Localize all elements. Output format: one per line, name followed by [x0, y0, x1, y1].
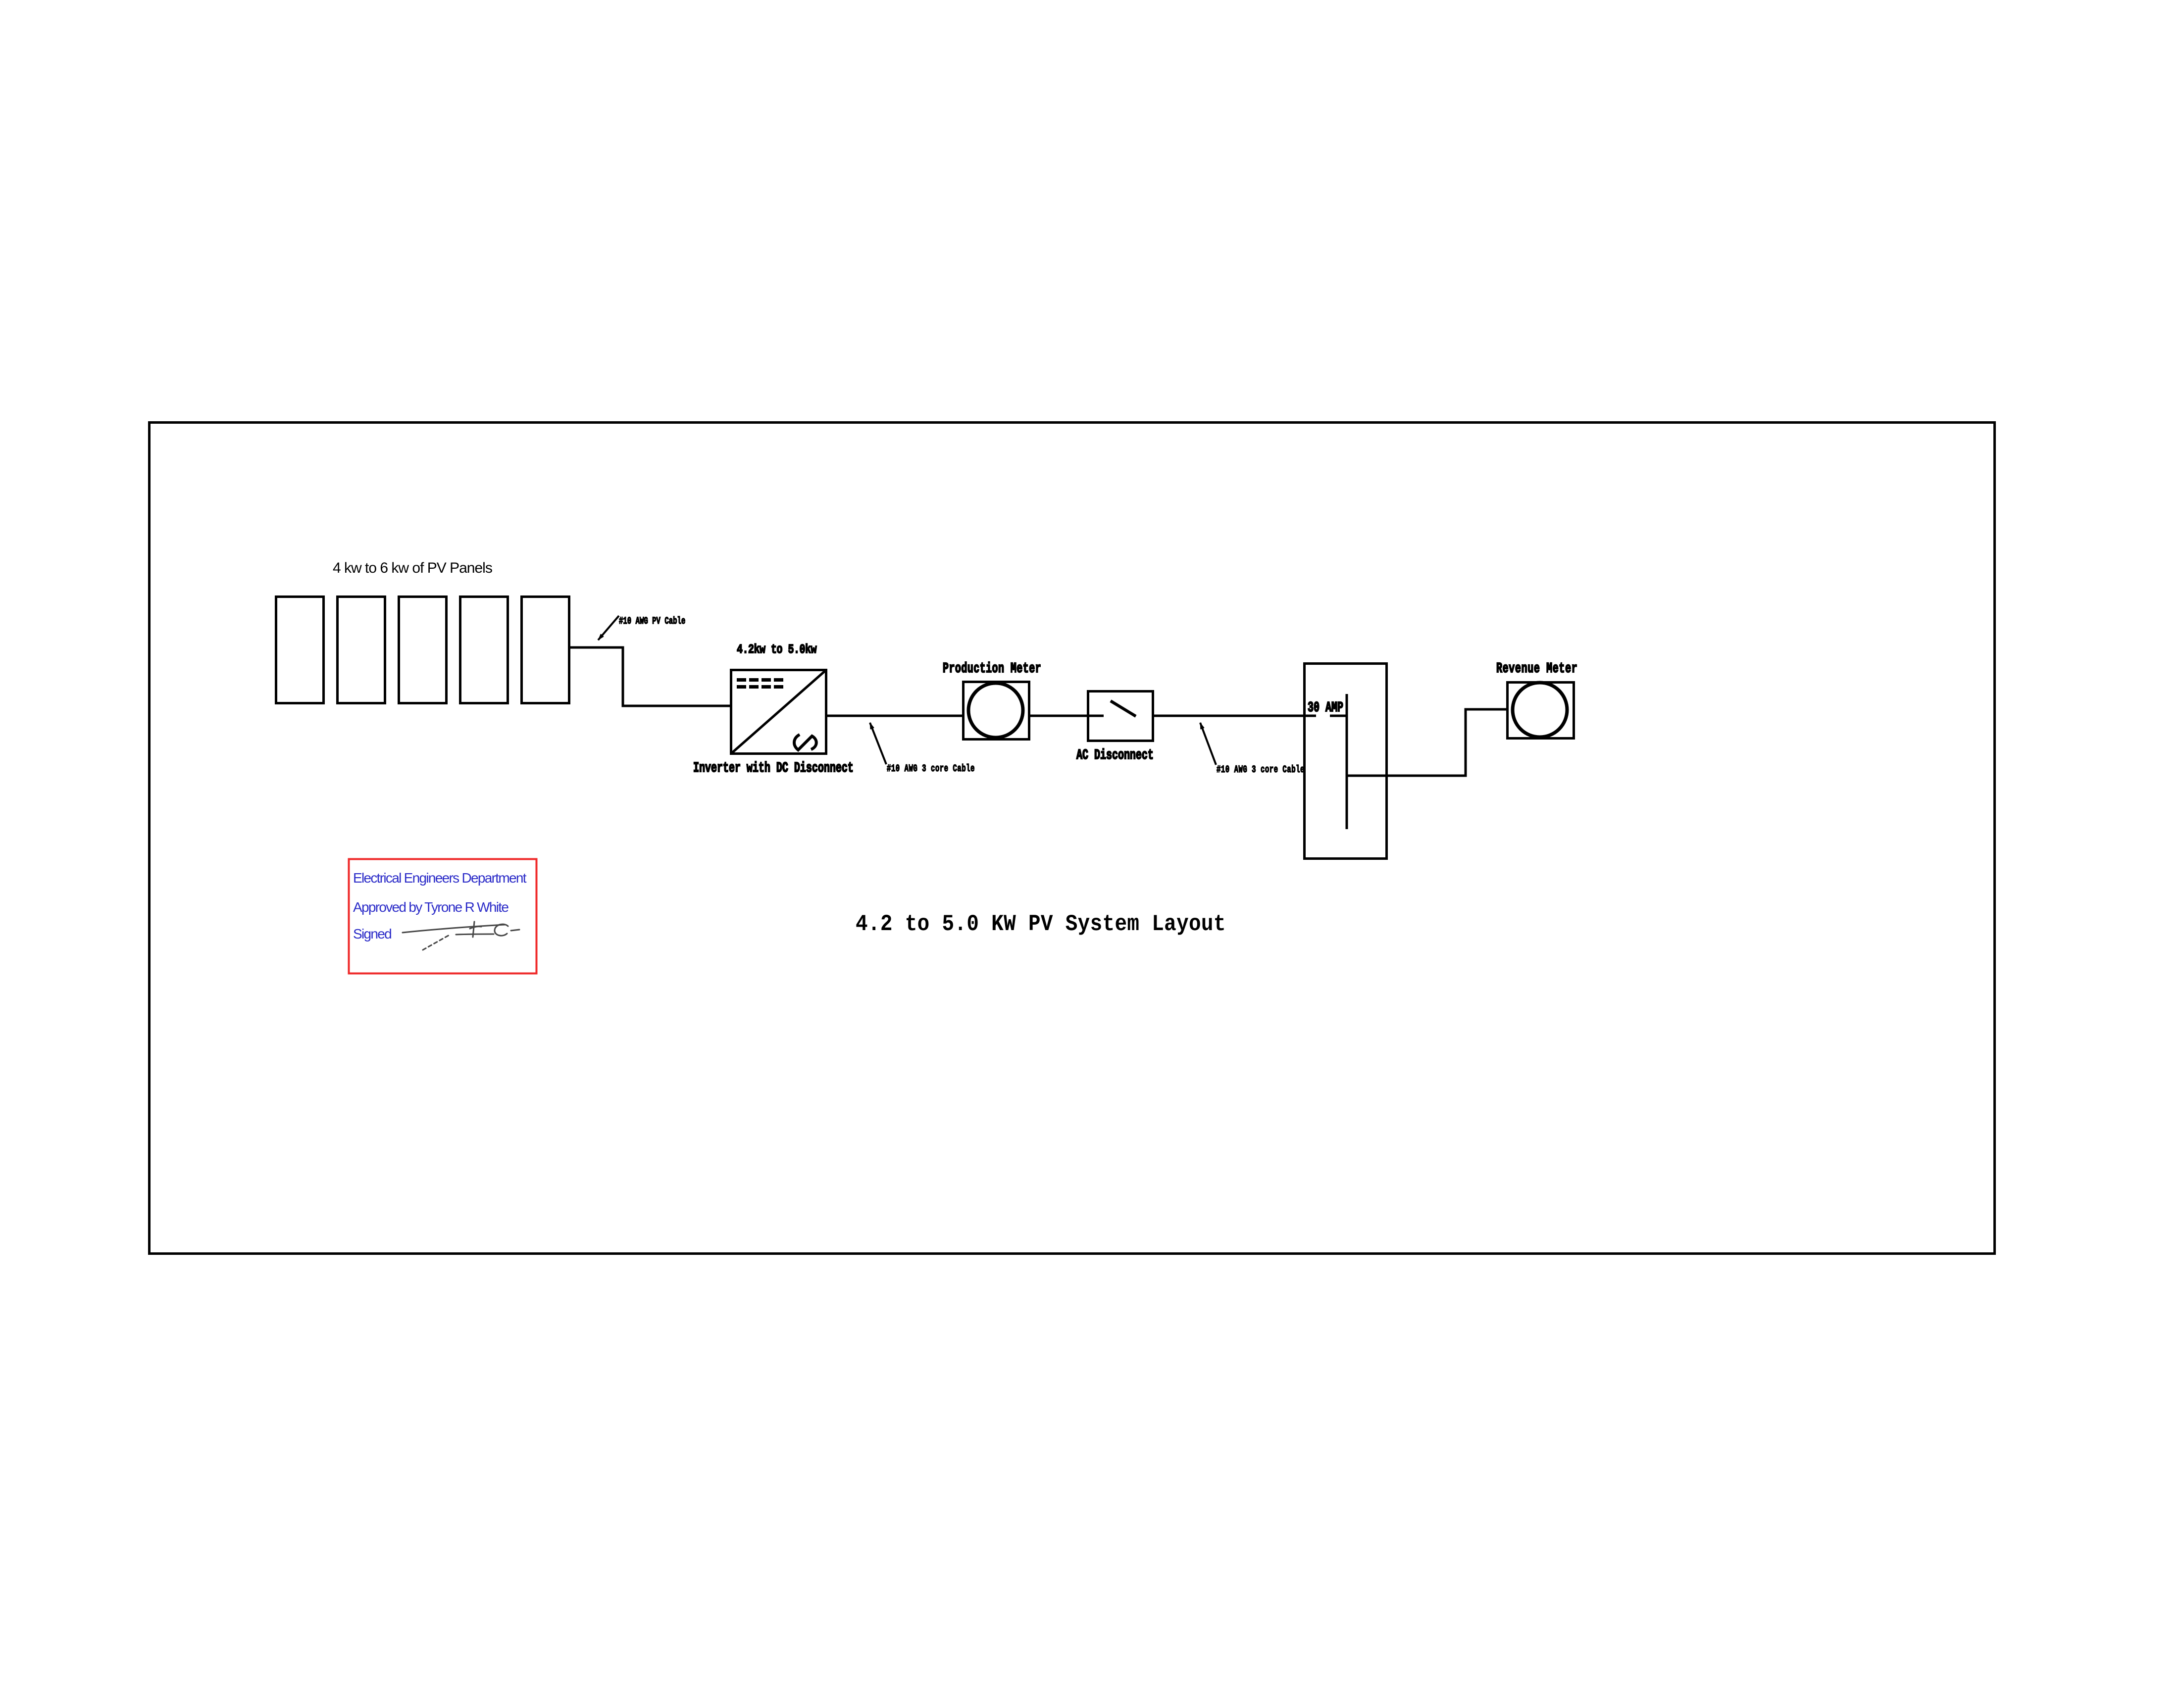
- svg-text:AC Disconnect: AC Disconnect: [1076, 747, 1154, 764]
- svg-text:Revenue Meter: Revenue Meter: [1496, 661, 1577, 677]
- svg-text:#10 AWG PV Cable: #10 AWG PV Cable: [619, 616, 685, 627]
- svg-text:#10 AWG 3 core Cable: #10 AWG 3 core Cable: [1217, 764, 1305, 776]
- svg-text:4.2kw to 5.0kw: 4.2kw to 5.0kw: [737, 643, 817, 657]
- svg-text:Approved by Tyrone R White: Approved by Tyrone R White: [353, 899, 508, 915]
- svg-text:Signed: Signed: [353, 926, 391, 941]
- svg-text:4 kw to 6 kw of PV Panels: 4 kw to 6 kw of PV Panels: [333, 560, 492, 576]
- svg-text:Inverter with DC Disconnect: Inverter with DC Disconnect: [693, 760, 854, 777]
- svg-text:4.2 to 5.0 KW PV System Layout: 4.2 to 5.0 KW PV System Layout: [856, 912, 1226, 938]
- svg-text:Electrical Engineers Departmen: Electrical Engineers Department: [353, 870, 527, 886]
- svg-text:30 AMP: 30 AMP: [1308, 700, 1343, 716]
- svg-text:#10 AWG 3 core Cable: #10 AWG 3 core Cable: [887, 763, 975, 775]
- svg-text:Production Meter: Production Meter: [943, 661, 1041, 677]
